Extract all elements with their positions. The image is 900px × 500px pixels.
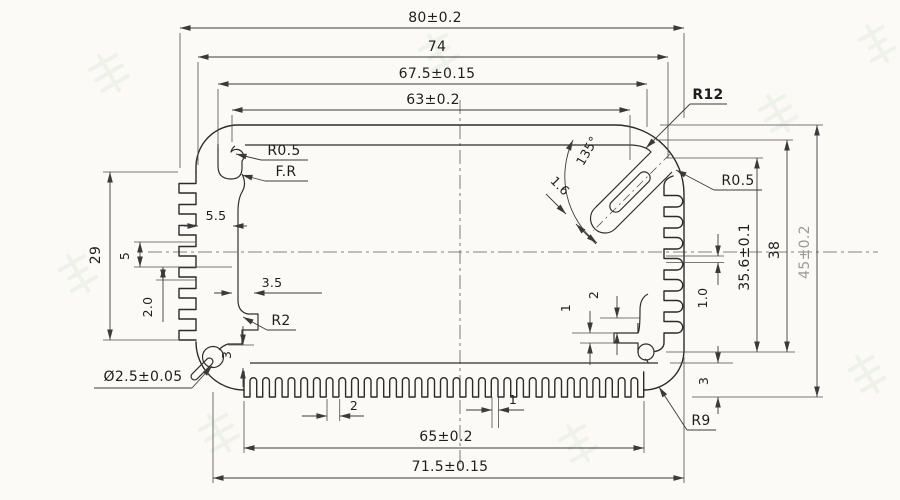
boss-axis-centerline	[593, 154, 670, 231]
dim-rail-step1: 1	[558, 304, 573, 312]
right-boss-bump	[638, 344, 654, 360]
dim-left-gap: 2.0	[140, 297, 155, 318]
dim-right-overall-height: 45±0.2	[797, 225, 813, 279]
leader-r05-left	[236, 154, 261, 160]
dim-bottom-fin-width: 1	[509, 392, 517, 407]
extrusion-profile-drawing: 80±0.2 74 67.5±0.15 63±0.2 65±0.2 71.5±0…	[0, 0, 900, 500]
left-rail	[219, 300, 258, 350]
leader-r05-right	[676, 170, 714, 190]
dim-right-fin-height: 3	[696, 377, 711, 385]
dim-slot-width: 1.6	[548, 173, 573, 198]
dim-top-outer: 74	[428, 39, 446, 55]
left-fins-path	[179, 172, 196, 340]
dim-bottom-fin-span: 65±0.2	[419, 429, 473, 445]
dim-boss-angle: 135°	[573, 133, 602, 168]
label-r05-left: R0.5	[267, 143, 300, 159]
dimension-text: 80±0.2 74 67.5±0.15 63±0.2 65±0.2 71.5±0…	[88, 10, 813, 475]
leader-hole-dia	[192, 366, 212, 388]
leader-r9	[659, 387, 687, 430]
profile-geometry	[179, 125, 684, 397]
label-r2: R2	[271, 313, 290, 329]
label-r9: R9	[691, 413, 710, 429]
diagonal-boss-wall	[590, 172, 672, 233]
bottom-fins-path	[244, 372, 644, 397]
dim-bottom-fin-pitch: 2	[350, 398, 358, 413]
label-fr: F.R	[276, 164, 297, 180]
dim-top-overall: 80±0.2	[408, 10, 462, 26]
leader-fr	[242, 175, 265, 181]
dim-left-pitch: 5	[117, 252, 132, 260]
dim-left-fin-depth: 5.5	[206, 208, 227, 223]
leader-r2	[243, 317, 267, 330]
dim-right-fin-gap: 1.0	[695, 288, 710, 309]
label-r12: R12	[692, 87, 723, 103]
dim-left-wall-step: 3.5	[262, 275, 283, 290]
dim-right-mid-height: 38	[767, 241, 783, 259]
diagonal-screw-slot	[607, 169, 652, 214]
dim-left-fin-zone: 29	[88, 246, 104, 264]
centerlines	[148, 100, 878, 470]
dim-bottom-base: 71.5±0.15	[412, 459, 489, 475]
dim-rail-step2: 2	[586, 291, 601, 299]
dim-top-inner: 63±0.2	[406, 92, 460, 108]
dim-top-mid: 67.5±0.15	[399, 66, 476, 82]
right-fins-path	[655, 176, 683, 352]
left-inner-wall	[238, 174, 245, 300]
drawing-sheet: 80±0.2 74 67.5±0.15 63±0.2 65±0.2 71.5±0…	[0, 0, 900, 500]
dim-left-step-height: 3	[219, 351, 234, 359]
top-left-hook	[218, 144, 244, 179]
dim-right-inner-height: 35.6±0.1	[737, 223, 753, 291]
label-r05-right: R0.5	[721, 173, 754, 189]
profile-outline	[196, 125, 684, 390]
dim-hole-diameter: Ø2.5±0.05	[104, 369, 183, 385]
